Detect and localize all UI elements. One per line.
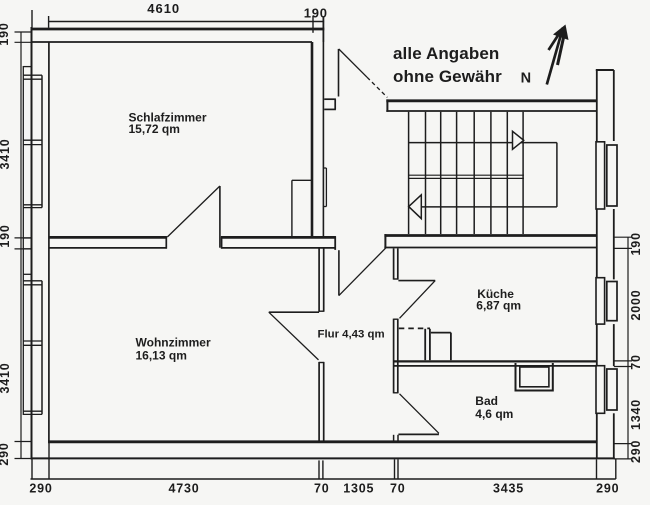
svg-text:290: 290 — [596, 481, 619, 495]
svg-text:16,13 qm: 16,13 qm — [136, 348, 187, 362]
svg-text:3410: 3410 — [0, 138, 12, 169]
svg-text:1305: 1305 — [343, 481, 374, 495]
svg-text:70: 70 — [390, 481, 406, 495]
svg-text:ohne Gewähr: ohne Gewähr — [393, 67, 502, 86]
svg-text:6,87 qm: 6,87 qm — [476, 298, 521, 312]
svg-text:290: 290 — [29, 481, 52, 495]
svg-text:4730: 4730 — [168, 481, 199, 495]
svg-text:190: 190 — [629, 232, 643, 255]
svg-text:290: 290 — [629, 440, 643, 463]
svg-text:2000: 2000 — [629, 289, 643, 320]
svg-text:4,6 qm: 4,6 qm — [475, 407, 513, 421]
svg-text:3435: 3435 — [493, 481, 524, 495]
svg-text:Wohnzimmer: Wohnzimmer — [136, 335, 211, 349]
svg-text:70: 70 — [629, 354, 643, 370]
svg-text:Flur 4,43 qm: Flur 4,43 qm — [318, 329, 385, 341]
svg-text:alle Angaben: alle Angaben — [393, 44, 499, 63]
svg-text:290: 290 — [0, 442, 11, 465]
svg-text:1340: 1340 — [629, 399, 643, 430]
svg-text:N: N — [521, 71, 531, 87]
svg-text:Bad: Bad — [475, 394, 498, 408]
svg-text:190: 190 — [0, 224, 12, 247]
svg-text:70: 70 — [314, 481, 330, 495]
svg-text:3410: 3410 — [0, 362, 12, 393]
svg-text:15,72 qm: 15,72 qm — [129, 122, 180, 136]
svg-text:190: 190 — [0, 22, 11, 45]
svg-text:4610: 4610 — [147, 1, 180, 16]
